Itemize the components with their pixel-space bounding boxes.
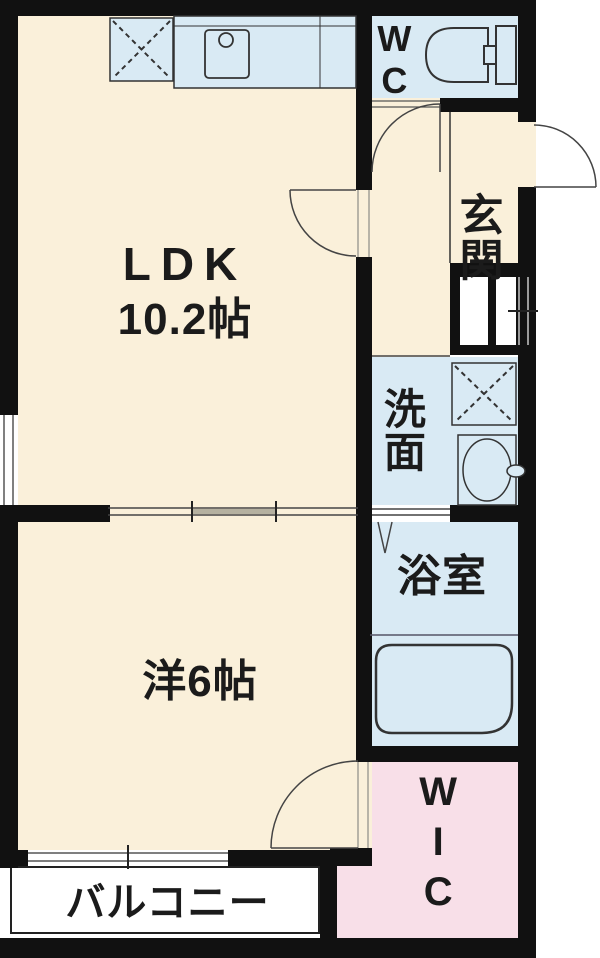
- ldk-door-opening: [356, 190, 372, 257]
- wc-label: WC: [374, 18, 413, 100]
- wall-bottom: [0, 938, 536, 958]
- entrance-door-opening: [518, 122, 536, 187]
- window-left-icon: [4, 415, 13, 505]
- wall-right-1: [518, 0, 536, 122]
- floor-plan: LDK 10.2帖 洋6帖 WC 玄関 洗面 浴室 WIC バルコニー: [0, 0, 600, 958]
- wall-western-bottom-left: [18, 850, 28, 866]
- ldk-label: LDK: [105, 240, 265, 290]
- wic-label: WIC: [416, 770, 459, 915]
- western-room-label: 洋6帖: [110, 658, 290, 706]
- entrance-label: 玄関: [453, 178, 501, 296]
- wall-center-long: [356, 257, 372, 762]
- washroom-label: 洗面: [379, 375, 424, 485]
- wall-ldk-western: [0, 505, 110, 522]
- wall-left-lower: [0, 505, 18, 868]
- wall-wash-bath: [450, 505, 536, 522]
- wic-door-opening: [356, 762, 372, 848]
- wall-top: [0, 0, 536, 16]
- hallway-lower: [372, 263, 450, 357]
- entrance-door-swing-icon: [534, 125, 596, 187]
- wall-balcony-right: [320, 850, 337, 938]
- wall-left-upper: [0, 0, 18, 415]
- sliding-door-band: [108, 505, 356, 522]
- bathroom-label: 浴室: [382, 553, 502, 601]
- ldk-size-label: 10.2帖: [85, 296, 285, 344]
- wall-bath-bottom: [372, 746, 536, 762]
- wall-center-upper: [356, 0, 372, 190]
- wall-western-bottom-right: [228, 850, 322, 866]
- wall-right-3: [518, 345, 536, 938]
- balcony-label: バルコニー: [40, 882, 295, 925]
